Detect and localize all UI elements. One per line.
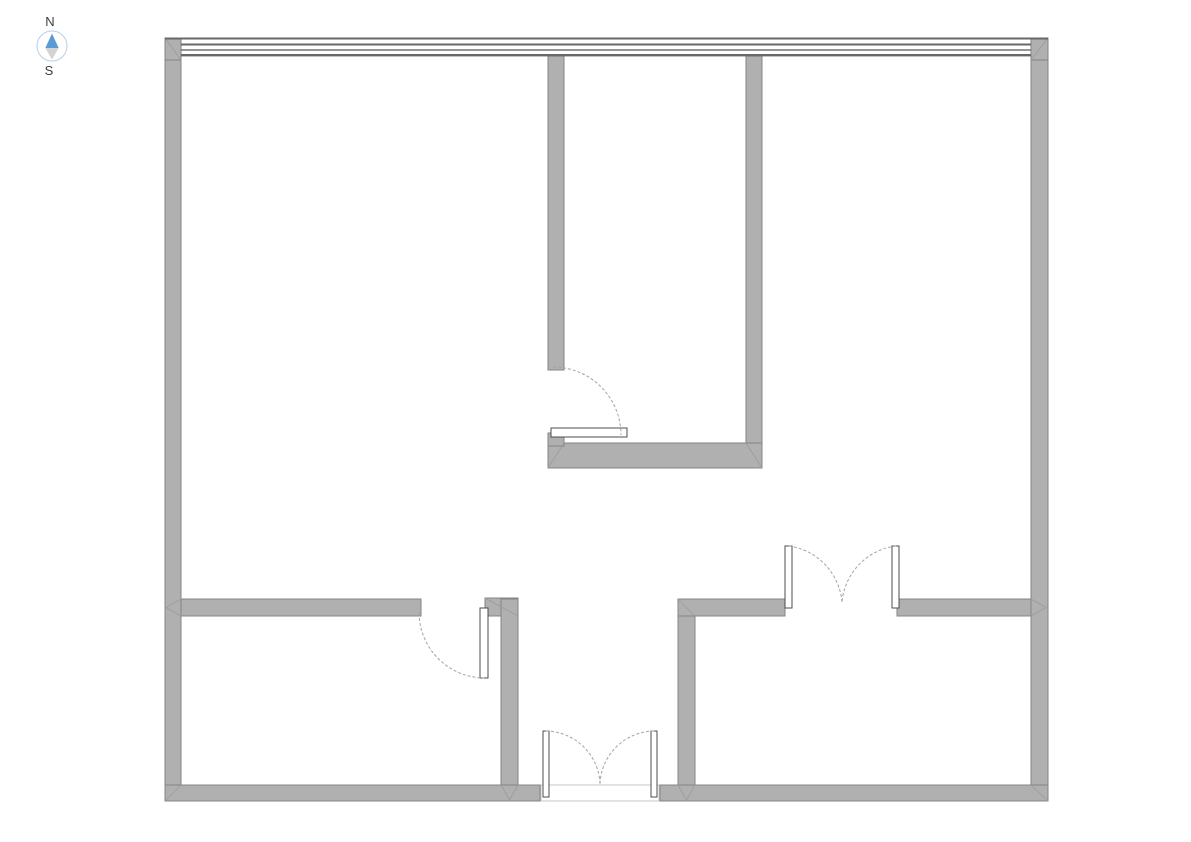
compass-north-label: N — [45, 14, 54, 29]
wall-interior-southeast-room-north-right — [897, 599, 1031, 616]
door-swing-arc-right-south-entry — [600, 731, 654, 784]
door-swing-arc-west-room — [419, 613, 484, 678]
window-glazing-line — [181, 54, 1031, 56]
double-door-leaf-right-south-entry — [651, 731, 657, 797]
floor-plan-drawing: N S — [0, 0, 1191, 842]
wall-interior-north-room-west — [548, 56, 564, 370]
wall-interior-west-wing — [181, 599, 421, 616]
double-door-leaf-left-south-entry — [543, 731, 549, 797]
window-glazing-line — [165, 38, 1048, 40]
door-swing-arc-right-southeast-room — [842, 546, 896, 602]
wall-interior-divider-west — [501, 599, 518, 785]
floor-plan-canvas: N S — [0, 0, 1191, 842]
wall-interior-divider-east — [678, 599, 695, 785]
compass-south-label: S — [45, 63, 54, 78]
double-door-leaf-right-southeast-room — [892, 546, 899, 608]
wall-interior-north-room-south — [548, 443, 762, 468]
door-leaf-west-room — [480, 608, 488, 678]
door-threshold — [541, 785, 659, 801]
wall-exterior-east — [1031, 38, 1048, 801]
door-leaf-north-room — [551, 428, 627, 437]
door-swing-arc-left-southeast-room — [789, 546, 842, 602]
wall-exterior-south-east-segment — [660, 785, 1048, 801]
wall-interior-southeast-room-north-left — [678, 599, 785, 616]
window-glazing-line — [181, 49, 1031, 50]
window-glazing-line — [181, 44, 1031, 46]
compass: N S — [37, 14, 67, 78]
double-door-leaf-left-southeast-room — [785, 546, 792, 608]
wall-exterior-south-west-segment — [165, 785, 540, 801]
plan-geometry — [165, 38, 1048, 802]
door-swing-arc-left-south-entry — [546, 731, 600, 784]
door-swing-arc-north-room — [553, 367, 621, 435]
wall-interior-north-room-east — [746, 56, 762, 468]
wall-exterior-west — [165, 38, 181, 801]
